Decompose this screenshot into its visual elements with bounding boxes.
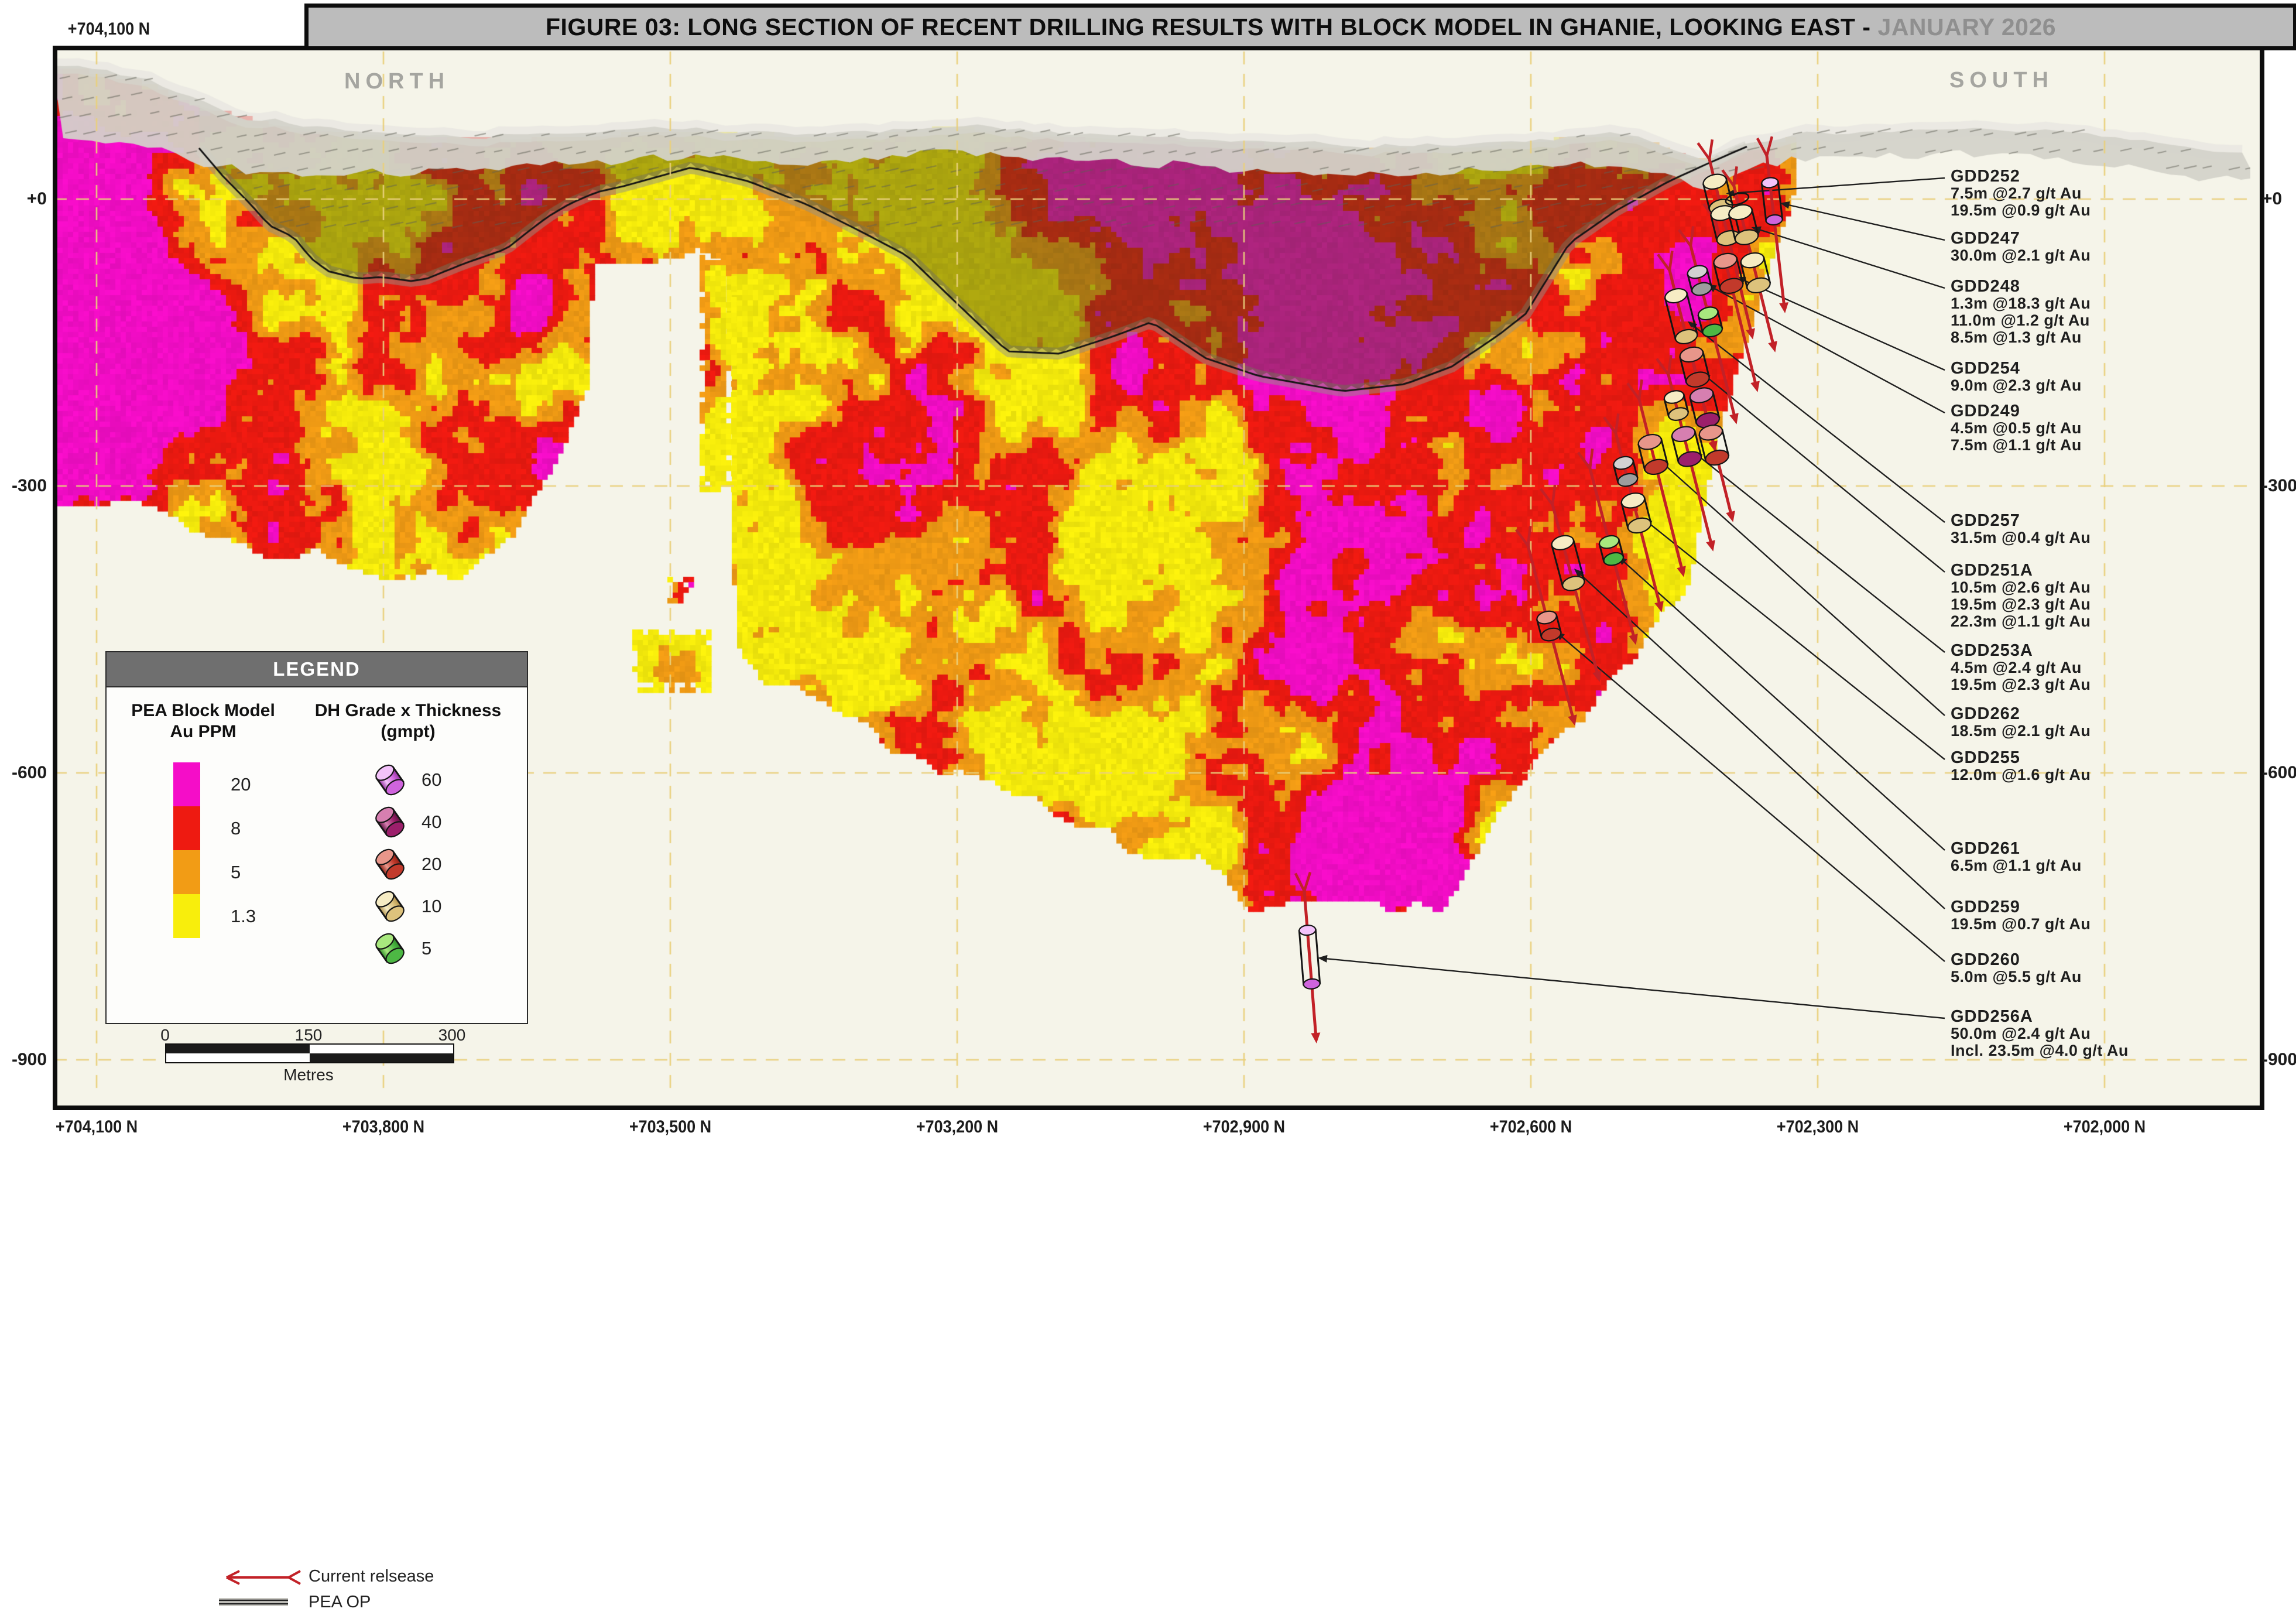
cylinder-icon-40: [370, 803, 411, 841]
scale-bar-unit: Metres: [165, 1066, 452, 1084]
hole-intercept: 7.5m @1.1 g/t Au: [1951, 437, 2082, 454]
north-label: NORTH: [344, 69, 450, 94]
legend-gradethickness-title: DH Grade x Thickness (gmpt): [300, 700, 516, 742]
northing-label: +702,600 N: [1468, 1117, 1594, 1137]
hole-label-GDD249: GDD2494.5m @0.5 g/t Au7.5m @1.1 g/t Au: [1951, 402, 2082, 454]
hole-intercept: 18.5m @2.1 g/t Au: [1951, 723, 2091, 740]
legend-color-bar: [173, 762, 200, 938]
cylinder-icon-60: [370, 761, 411, 799]
figure-title-date: JANUARY 2026: [1878, 13, 2057, 41]
hole-intercept: Incl. 23.5m @4.0 g/t Au: [1951, 1042, 2129, 1059]
elevation-label-left: -600: [0, 763, 47, 783]
cylinder-icon-20: [370, 846, 411, 883]
legend-cylinder-20: [373, 847, 407, 882]
scale-bar-graphic: [165, 1043, 454, 1063]
hole-intercept: 5.0m @5.5 g/t Au: [1951, 968, 2082, 985]
pea-op-line-icon: [218, 1595, 294, 1610]
hole-name: GDD247: [1951, 230, 2091, 247]
hole-label-GDD257: GDD25731.5m @0.4 g/t Au: [1951, 512, 2091, 546]
legend-cylinder-value: 60: [421, 769, 441, 790]
hole-intercept: 9.0m @2.3 g/t Au: [1951, 377, 2082, 394]
legend-cylinder-40: [373, 805, 407, 840]
legend-cylinder-10: [373, 889, 407, 925]
northing-label: +702,300 N: [1754, 1117, 1881, 1137]
legend-cylinder-row: 10: [370, 888, 510, 925]
legend-grade-swatch: [173, 850, 200, 894]
elevation-label-right: -600: [2262, 763, 2296, 783]
hole-intercept: 7.5m @2.7 g/t Au: [1951, 185, 2091, 202]
legend-blockmodel-title: PEA Block Model Au PPM: [118, 700, 288, 742]
northing-label: +704,100 N: [33, 1117, 160, 1137]
elevation-label-right: +0: [2262, 189, 2296, 209]
hole-name: GDD254: [1951, 360, 2082, 377]
northing-label: +702,000 N: [2041, 1117, 2168, 1137]
pea-op-label: PEA OP: [309, 1593, 371, 1612]
hole-name: GDD256A: [1951, 1008, 2129, 1025]
figure-title: FIGURE 03: LONG SECTION OF RECENT DRILLI…: [546, 13, 1871, 41]
hole-intercept: 4.5m @0.5 g/t Au: [1951, 420, 2082, 437]
current-release-label: Current relsease: [309, 1567, 434, 1586]
hole-intercept: 30.0m @2.1 g/t Au: [1951, 247, 2091, 264]
legend-cylinder-value: 20: [421, 854, 441, 875]
legend-cylinder-60: [373, 762, 407, 798]
northing-label: +702,900 N: [1181, 1117, 1307, 1137]
hole-label-GDD253A: GDD253A4.5m @2.4 g/t Au19.5m @2.3 g/t Au: [1951, 642, 2091, 693]
south-label: SOUTH: [1949, 68, 2054, 93]
legend-header: LEGEND: [105, 651, 528, 687]
hole-name: GDD259: [1951, 898, 2091, 916]
hole-intercept: 19.5m @0.9 g/t Au: [1951, 202, 2091, 219]
hole-label-GDD254: GDD2549.0m @2.3 g/t Au: [1951, 360, 2082, 394]
hole-label-GDD252: GDD2527.5m @2.7 g/t Au19.5m @0.9 g/t Au: [1951, 167, 2091, 219]
elevation-label-left: -300: [0, 476, 47, 496]
hole-intercept: 50.0m @2.4 g/t Au: [1951, 1025, 2129, 1042]
legend-grade-label: 1.3: [231, 906, 277, 927]
northing-label: +703,500 N: [607, 1117, 734, 1137]
elevation-label-left: -900: [0, 1050, 47, 1070]
legend-grade-swatch: [173, 894, 200, 938]
legend-cylinder-value: 5: [421, 938, 431, 959]
elevation-label-right: -900: [2262, 1050, 2296, 1070]
legend-grade-label: 8: [231, 818, 277, 839]
hole-label-GDD255: GDD25512.0m @1.6 g/t Au: [1951, 749, 2091, 783]
legend-title: LEGEND: [273, 658, 361, 680]
elevation-label-right: -300: [2262, 476, 2296, 496]
legend-cylinder-row: 60: [370, 761, 510, 799]
hole-label-GDD261: GDD2616.5m @1.1 g/t Au: [1951, 840, 2082, 874]
hole-label-GDD262: GDD26218.5m @2.1 g/t Au: [1951, 705, 2091, 740]
legend-cylinder-row: 5: [370, 930, 510, 967]
cylinder-icon-10: [370, 888, 411, 925]
hole-label-GDD251A: GDD251A10.5m @2.6 g/t Au19.5m @2.3 g/t A…: [1951, 562, 2091, 630]
hole-intercept: 11.0m @1.2 g/t Au: [1951, 312, 2091, 329]
cylinder-icon-5: [370, 930, 411, 967]
hole-name: GDD252: [1951, 167, 2091, 185]
legend-grade-label: 20: [231, 774, 277, 795]
legend: LEGEND PEA Block Model Au PPM DH Grade x…: [105, 651, 528, 1024]
legend-grade-label: 5: [231, 862, 277, 883]
hole-name: GDD248: [1951, 278, 2091, 295]
hole-name: GDD251A: [1951, 562, 2091, 579]
elevation-label-left: +0: [0, 189, 47, 209]
legend-cylinder-row: 20: [370, 846, 510, 883]
current-release-arrow-icon: [215, 1566, 303, 1589]
legend-cylinder-row: 40: [370, 803, 510, 841]
hole-label-GDD248: GDD2481.3m @18.3 g/t Au11.0m @1.2 g/t Au…: [1951, 278, 2091, 346]
hole-intercept: 6.5m @1.1 g/t Au: [1951, 857, 2082, 874]
hole-intercept: 19.5m @0.7 g/t Au: [1951, 916, 2091, 933]
hole-intercept: 31.5m @0.4 g/t Au: [1951, 529, 2091, 546]
hole-name: GDD255: [1951, 749, 2091, 766]
hole-label-GDD260: GDD2605.0m @5.5 g/t Au: [1951, 951, 2082, 985]
hole-name: GDD261: [1951, 840, 2082, 857]
hole-intercept: 4.5m @2.4 g/t Au: [1951, 659, 2091, 676]
legend-grade-swatch: [173, 762, 200, 806]
hole-intercept: 19.5m @2.3 g/t Au: [1951, 596, 2091, 613]
legend-grade-swatch: [173, 806, 200, 850]
hole-name: GDD260: [1951, 951, 2082, 968]
legend-cylinder-value: 10: [421, 896, 441, 917]
northing-label: +703,200 N: [894, 1117, 1020, 1137]
legend-cylinder-5: [373, 931, 407, 967]
hole-intercept: 8.5m @1.3 g/t Au: [1951, 329, 2091, 346]
scale-tick-0: 0: [142, 1026, 189, 1045]
hole-name: GDD253A: [1951, 642, 2091, 659]
hole-name: GDD262: [1951, 705, 2091, 723]
figure-title-bar: FIGURE 03: LONG SECTION OF RECENT DRILLI…: [304, 4, 2296, 50]
top-northing-label: +704,100 N: [68, 19, 150, 39]
hole-intercept: 10.5m @2.6 g/t Au: [1951, 579, 2091, 596]
scale-tick-300: 300: [429, 1026, 475, 1045]
hole-intercept: 22.3m @1.1 g/t Au: [1951, 613, 2091, 630]
scale-tick-150: 150: [285, 1026, 332, 1045]
hole-intercept: 12.0m @1.6 g/t Au: [1951, 766, 2091, 783]
scale-bar: 0 150 300 Metres: [165, 1026, 458, 1084]
legend-cylinder-value: 40: [421, 812, 441, 833]
hole-intercept: 1.3m @18.3 g/t Au: [1951, 295, 2091, 312]
hole-name: GDD257: [1951, 512, 2091, 529]
hole-label-GDD247: GDD24730.0m @2.1 g/t Au: [1951, 230, 2091, 264]
hole-label-GDD259: GDD25919.5m @0.7 g/t Au: [1951, 898, 2091, 933]
hole-intercept: 19.5m @2.3 g/t Au: [1951, 676, 2091, 693]
hole-name: GDD249: [1951, 402, 2082, 420]
hole-label-GDD256A: GDD256A50.0m @2.4 g/t AuIncl. 23.5m @4.0…: [1951, 1008, 2129, 1059]
northing-label: +703,800 N: [320, 1117, 447, 1137]
